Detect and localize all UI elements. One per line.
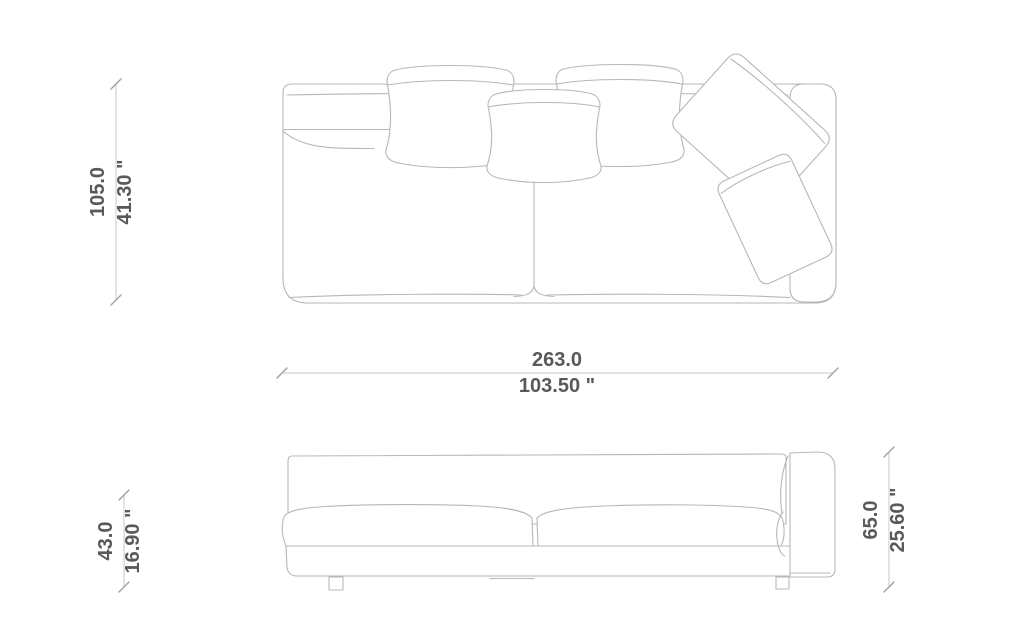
- dimension-seat-height: 43.0 16.90 ": [95, 490, 144, 592]
- drawing-svg: 105.0 41.30 " 263.0 103.50 " 43.0 16.90 …: [0, 0, 1024, 640]
- dimension-width-cm: 263.0: [532, 349, 582, 371]
- sofa-foot-left: [329, 577, 343, 590]
- dimension-total-height-inches: 25.60 ": [887, 487, 909, 552]
- sofa-base: [286, 546, 800, 576]
- dimension-seat-height-cm: 43.0: [95, 522, 117, 561]
- back-cushion-2: [487, 90, 601, 183]
- top-view: [283, 50, 836, 303]
- dimension-depth-inches: 41.30 ": [114, 159, 136, 224]
- dimension-total-height: 65.0 25.60 ": [860, 447, 909, 592]
- dimension-total-height-cm: 65.0: [860, 501, 882, 540]
- front-view: [282, 452, 835, 590]
- dimension-width-inches: 103.50 ": [519, 375, 595, 397]
- sofa-foot-right: [776, 577, 789, 589]
- dimension-seat-height-inches: 16.90 ": [122, 508, 144, 573]
- dimension-depth-cm: 105.0: [87, 167, 109, 217]
- dimension-depth: 105.0 41.30 ": [87, 79, 136, 305]
- back-cushion-2-outline: [487, 90, 601, 183]
- seat-cushion-left: [282, 505, 533, 546]
- sofa-dimension-drawing: 105.0 41.30 " 263.0 103.50 " 43.0 16.90 …: [0, 0, 1024, 640]
- armrest-front: [790, 452, 835, 577]
- dimension-width: 263.0 103.50 ": [277, 349, 838, 397]
- seat-cushion-right: [537, 505, 784, 546]
